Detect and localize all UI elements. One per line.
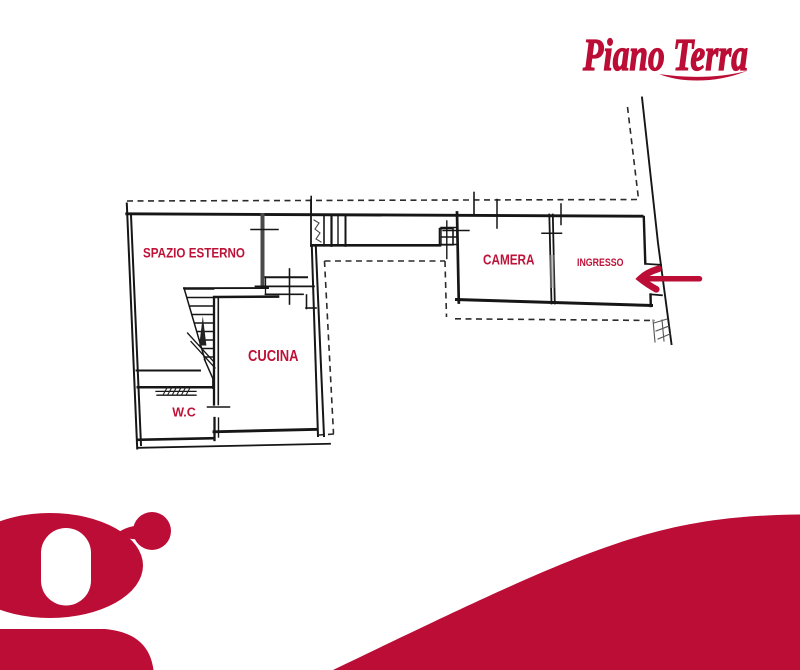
- svg-text:CAMERA: CAMERA: [483, 252, 535, 269]
- svg-text:INGRESSO: INGRESSO: [577, 257, 624, 269]
- svg-text:CUCINA: CUCINA: [248, 348, 299, 365]
- svg-text:W.C: W.C: [172, 406, 196, 420]
- svg-text:Piano Terra: Piano Terra: [582, 30, 748, 80]
- svg-text:SPAZIO ESTERNO: SPAZIO ESTERNO: [143, 245, 245, 261]
